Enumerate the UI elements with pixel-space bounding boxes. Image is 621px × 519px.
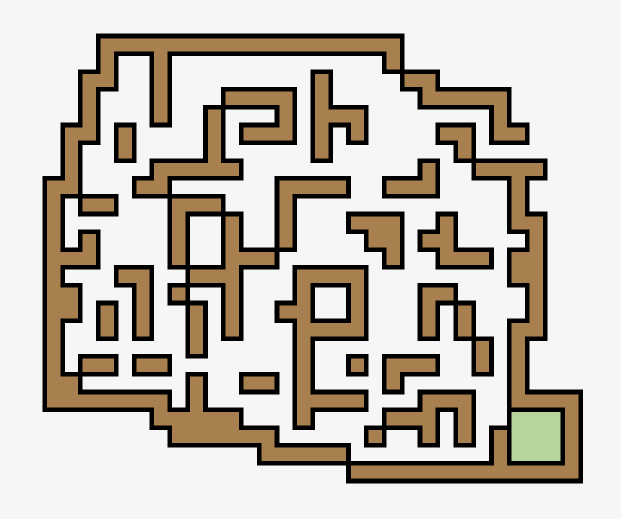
maze-wall-cell bbox=[44, 303, 62, 321]
maze-wall-cell bbox=[187, 427, 205, 445]
maze-wall-cell bbox=[187, 410, 205, 428]
maze-wall-cell bbox=[98, 54, 116, 72]
maze-wall-cell bbox=[277, 89, 295, 107]
maze-wall-cell bbox=[330, 178, 348, 196]
maze-wall-cell bbox=[223, 214, 241, 232]
maze-wall-cell bbox=[420, 89, 438, 107]
maze-wall-cell bbox=[420, 321, 438, 339]
maze-wall-cell bbox=[98, 392, 116, 410]
maze-wall-cell bbox=[241, 89, 259, 107]
maze-goal-cell bbox=[509, 445, 527, 463]
maze-wall-cell bbox=[563, 392, 581, 410]
maze-wall-cell bbox=[420, 427, 438, 445]
maze-wall-cell bbox=[152, 392, 170, 410]
maze-wall-cell bbox=[295, 445, 313, 463]
maze-wall-cell bbox=[509, 178, 527, 196]
maze-wall-cell bbox=[384, 214, 402, 232]
maze-wall-cell bbox=[62, 125, 80, 143]
maze-wall-cell bbox=[438, 285, 456, 303]
maze-wall-cell bbox=[295, 178, 313, 196]
maze-wall-cell bbox=[312, 321, 330, 339]
maze-wall-cell bbox=[241, 125, 259, 143]
maze-wall-cell bbox=[223, 232, 241, 250]
maze-wall-cell bbox=[295, 392, 313, 410]
maze-wall-cell bbox=[187, 303, 205, 321]
maze-wall-cell bbox=[80, 356, 98, 374]
maze-wall-cell bbox=[44, 356, 62, 374]
maze-wall-cell bbox=[44, 321, 62, 339]
maze-wall-cell bbox=[134, 356, 152, 374]
maze-wall-cell bbox=[420, 71, 438, 89]
maze-wall-cell bbox=[80, 125, 98, 143]
maze-wall-cell bbox=[438, 392, 456, 410]
maze-wall-cell bbox=[420, 232, 438, 250]
maze-wall-cell bbox=[491, 445, 509, 463]
maze-wall-cell bbox=[366, 232, 384, 250]
maze-wall-cell bbox=[455, 392, 473, 410]
maze-wall-cell bbox=[384, 249, 402, 267]
maze-wall-cell bbox=[44, 249, 62, 267]
maze-wall-cell bbox=[384, 54, 402, 72]
maze-wall-cell bbox=[527, 285, 545, 303]
maze-wall-cell bbox=[384, 36, 402, 54]
maze-wall-cell bbox=[44, 178, 62, 196]
maze-wall-cell bbox=[187, 267, 205, 285]
maze-wall-cell bbox=[420, 303, 438, 321]
maze-wall-cell bbox=[187, 374, 205, 392]
maze-wall-cell bbox=[295, 356, 313, 374]
maze-wall-cell bbox=[366, 463, 384, 481]
maze-wall-cell bbox=[44, 285, 62, 303]
maze-wall-cell bbox=[80, 249, 98, 267]
maze-wall-cell bbox=[116, 267, 134, 285]
maze-wall-cell bbox=[205, 267, 223, 285]
maze-wall-cell bbox=[205, 427, 223, 445]
maze-wall-cell bbox=[277, 214, 295, 232]
maze-wall-cell bbox=[169, 232, 187, 250]
maze-wall-cell bbox=[134, 36, 152, 54]
maze-wall-cell bbox=[134, 178, 152, 196]
maze-wall-cell bbox=[384, 410, 402, 428]
maze-wall-cell bbox=[312, 107, 330, 125]
maze-wall-cell bbox=[491, 125, 509, 143]
maze-wall-cell bbox=[312, 143, 330, 161]
maze-wall-cell bbox=[348, 214, 366, 232]
maze-wall-cell bbox=[152, 410, 170, 428]
maze-wall-cell bbox=[420, 178, 438, 196]
maze-wall-cell bbox=[330, 321, 348, 339]
maze-wall-cell bbox=[312, 89, 330, 107]
maze-wall-cell bbox=[223, 160, 241, 178]
maze-wall-cell bbox=[62, 285, 80, 303]
maze-wall-cell bbox=[312, 267, 330, 285]
maze-wall-cell bbox=[223, 267, 241, 285]
maze-wall-cell bbox=[241, 249, 259, 267]
maze-wall-cell bbox=[241, 427, 259, 445]
maze-wall-cell bbox=[62, 303, 80, 321]
maze-wall-cell bbox=[152, 54, 170, 72]
maze-wall-cell bbox=[205, 410, 223, 428]
maze-goal-cell bbox=[545, 427, 563, 445]
maze-wall-cell bbox=[295, 36, 313, 54]
maze-wall-cell bbox=[295, 285, 313, 303]
maze-wall-cell bbox=[44, 374, 62, 392]
maze-goal-cell bbox=[527, 410, 545, 428]
maze-wall-cell bbox=[259, 249, 277, 267]
maze-wall-cell bbox=[455, 125, 473, 143]
maze-wall-cell bbox=[116, 143, 134, 161]
maze-wall-cell bbox=[259, 89, 277, 107]
maze-wall-cell bbox=[384, 374, 402, 392]
maze-wall-cell bbox=[509, 356, 527, 374]
maze-wall-cell bbox=[527, 463, 545, 481]
maze-wall-cell bbox=[152, 71, 170, 89]
maze-wall-cell bbox=[509, 249, 527, 267]
maze-wall-cell bbox=[134, 303, 152, 321]
maze-wall-cell bbox=[152, 107, 170, 125]
maze-wall-cell bbox=[98, 36, 116, 54]
maze-wall-cell bbox=[169, 36, 187, 54]
maze-wall-cell bbox=[223, 303, 241, 321]
maze-wall-cell bbox=[330, 392, 348, 410]
game-window bbox=[0, 0, 621, 519]
maze-wall-cell bbox=[259, 427, 277, 445]
maze-wall-cell bbox=[277, 107, 295, 125]
maze-wall-cell bbox=[62, 249, 80, 267]
maze-wall-cell bbox=[259, 374, 277, 392]
maze-wall-cell bbox=[438, 249, 456, 267]
maze-wall-cell bbox=[223, 410, 241, 428]
maze-wall-cell bbox=[205, 107, 223, 125]
maze-wall-cell bbox=[420, 160, 438, 178]
maze-wall-cell bbox=[330, 445, 348, 463]
maze-wall-cell bbox=[205, 160, 223, 178]
maze-wall-cell bbox=[509, 392, 527, 410]
maze-wall-cell bbox=[330, 36, 348, 54]
maze-wall-cell bbox=[348, 463, 366, 481]
maze-wall-cell bbox=[62, 178, 80, 196]
maze-wall-cell bbox=[152, 160, 170, 178]
maze-wall-cell bbox=[527, 392, 545, 410]
maze-wall-cell bbox=[491, 427, 509, 445]
maze-wall-cell bbox=[80, 196, 98, 214]
maze-wall-cell bbox=[455, 143, 473, 161]
maze-wall-cell bbox=[187, 321, 205, 339]
maze-wall-cell bbox=[563, 410, 581, 428]
maze-wall-cell bbox=[563, 427, 581, 445]
maze-wall-cell bbox=[116, 125, 134, 143]
maze-wall-cell bbox=[295, 374, 313, 392]
maze-wall-cell bbox=[134, 285, 152, 303]
maze-wall-cell bbox=[348, 356, 366, 374]
maze-wall-cell bbox=[277, 232, 295, 250]
maze-wall-cell bbox=[277, 445, 295, 463]
maze-wall-cell bbox=[509, 321, 527, 339]
maze-wall-cell bbox=[312, 178, 330, 196]
maze-wall-cell bbox=[455, 463, 473, 481]
maze-wall-cell bbox=[277, 196, 295, 214]
maze-wall-cell bbox=[402, 356, 420, 374]
maze-wall-cell bbox=[80, 89, 98, 107]
maze-wall-cell bbox=[223, 321, 241, 339]
maze-goal-cell bbox=[527, 445, 545, 463]
maze-wall-cell bbox=[134, 267, 152, 285]
maze-wall-cell bbox=[259, 36, 277, 54]
maze-wall-cell bbox=[223, 427, 241, 445]
maze-wall-cell bbox=[169, 410, 187, 428]
maze-wall-cell bbox=[402, 463, 420, 481]
maze-wall-cell bbox=[509, 125, 527, 143]
maze-wall-cell bbox=[134, 392, 152, 410]
maze-wall-cell bbox=[420, 285, 438, 303]
maze-wall-cell bbox=[384, 232, 402, 250]
maze-wall-cell bbox=[509, 463, 527, 481]
maze-wall-cell bbox=[187, 196, 205, 214]
maze-wall-cell bbox=[187, 160, 205, 178]
maze-wall-cell bbox=[116, 36, 134, 54]
maze-wall-cell bbox=[312, 36, 330, 54]
maze-wall-cell bbox=[384, 356, 402, 374]
maze-wall-cell bbox=[473, 89, 491, 107]
maze-wall-cell bbox=[98, 321, 116, 339]
maze-wall-cell bbox=[277, 303, 295, 321]
maze-wall-cell bbox=[438, 89, 456, 107]
maze-wall-cell bbox=[205, 36, 223, 54]
maze-wall-cell bbox=[563, 463, 581, 481]
maze-wall-cell bbox=[420, 356, 438, 374]
maze-canvas[interactable] bbox=[0, 0, 621, 519]
maze-wall-cell bbox=[438, 463, 456, 481]
maze-wall-cell bbox=[366, 214, 384, 232]
maze-wall-cell bbox=[402, 71, 420, 89]
maze-wall-cell bbox=[509, 338, 527, 356]
maze-wall-cell bbox=[420, 463, 438, 481]
maze-goal-cell bbox=[527, 427, 545, 445]
maze-wall-cell bbox=[438, 214, 456, 232]
maze-wall-cell bbox=[366, 427, 384, 445]
maze-wall-cell bbox=[545, 463, 563, 481]
maze-wall-cell bbox=[277, 178, 295, 196]
maze-wall-cell bbox=[348, 285, 366, 303]
maze-wall-cell bbox=[223, 89, 241, 107]
maze-wall-cell bbox=[491, 89, 509, 107]
maze-wall-cell bbox=[241, 36, 259, 54]
maze-wall-cell bbox=[366, 36, 384, 54]
maze-wall-cell bbox=[44, 267, 62, 285]
maze-goal-cell bbox=[545, 445, 563, 463]
maze-wall-cell bbox=[402, 178, 420, 196]
maze-wall-cell bbox=[62, 374, 80, 392]
maze-wall-cell bbox=[348, 125, 366, 143]
maze-wall-cell bbox=[509, 160, 527, 178]
maze-wall-cell bbox=[134, 321, 152, 339]
maze-wall-cell bbox=[438, 232, 456, 250]
maze-wall-cell bbox=[187, 338, 205, 356]
maze-wall-cell bbox=[473, 249, 491, 267]
maze-wall-cell bbox=[62, 392, 80, 410]
maze-wall-cell bbox=[295, 267, 313, 285]
maze-wall-cell bbox=[152, 89, 170, 107]
maze-wall-cell bbox=[384, 463, 402, 481]
maze-wall-cell bbox=[455, 89, 473, 107]
maze-wall-cell bbox=[295, 303, 313, 321]
maze-wall-cell bbox=[44, 338, 62, 356]
maze-wall-cell bbox=[348, 321, 366, 339]
maze-goal-cell bbox=[545, 410, 563, 428]
maze-wall-cell bbox=[527, 267, 545, 285]
maze-wall-cell bbox=[455, 427, 473, 445]
maze-wall-cell bbox=[491, 463, 509, 481]
maze-wall-cell bbox=[98, 356, 116, 374]
maze-wall-cell bbox=[527, 160, 545, 178]
maze-wall-cell bbox=[348, 36, 366, 54]
maze-wall-cell bbox=[455, 410, 473, 428]
maze-wall-cell bbox=[295, 338, 313, 356]
maze-wall-cell bbox=[312, 71, 330, 89]
maze-wall-cell bbox=[80, 232, 98, 250]
maze-wall-cell bbox=[527, 303, 545, 321]
maze-wall-cell bbox=[420, 392, 438, 410]
maze-wall-cell bbox=[116, 392, 134, 410]
maze-wall-cell bbox=[152, 178, 170, 196]
maze-wall-cell bbox=[169, 427, 187, 445]
maze-wall-cell bbox=[509, 267, 527, 285]
maze-wall-cell bbox=[330, 267, 348, 285]
maze-wall-cell bbox=[455, 321, 473, 339]
maze-wall-cell bbox=[348, 107, 366, 125]
maze-wall-cell bbox=[348, 267, 366, 285]
maze-wall-cell bbox=[169, 249, 187, 267]
maze-wall-cell bbox=[473, 463, 491, 481]
maze-wall-cell bbox=[491, 107, 509, 125]
maze-wall-cell bbox=[527, 321, 545, 339]
maze-wall-cell bbox=[277, 36, 295, 54]
maze-wall-cell bbox=[223, 249, 241, 267]
maze-wall-cell bbox=[295, 410, 313, 428]
maze-goal[interactable] bbox=[509, 410, 563, 464]
maze-wall-cell bbox=[295, 321, 313, 339]
maze-wall-cell bbox=[312, 392, 330, 410]
maze-wall-cell bbox=[277, 125, 295, 143]
maze-wall-cell bbox=[169, 285, 187, 303]
maze-wall-cell bbox=[384, 178, 402, 196]
maze-wall-cell bbox=[98, 303, 116, 321]
maze-wall-cell bbox=[44, 214, 62, 232]
maze-wall-cell bbox=[545, 392, 563, 410]
maze-wall-cell bbox=[455, 249, 473, 267]
maze-wall-cell bbox=[259, 125, 277, 143]
maze-wall-cell bbox=[312, 125, 330, 143]
maze-goal-cell bbox=[509, 427, 527, 445]
maze-wall-cell bbox=[527, 232, 545, 250]
maze-wall-cell bbox=[80, 107, 98, 125]
maze-wall-cell bbox=[223, 36, 241, 54]
maze-wall-cell bbox=[169, 160, 187, 178]
maze-wall-cell bbox=[169, 214, 187, 232]
maze-wall-cell bbox=[187, 36, 205, 54]
maze-wall-cell bbox=[44, 196, 62, 214]
maze-wall-cell bbox=[402, 410, 420, 428]
maze-wall-cell bbox=[312, 445, 330, 463]
maze-wall-cell bbox=[205, 125, 223, 143]
maze-wall-cell bbox=[330, 107, 348, 125]
maze-wall-cell bbox=[509, 214, 527, 232]
maze-wall-cell bbox=[241, 374, 259, 392]
maze-wall-cell bbox=[152, 356, 170, 374]
maze-wall-cell bbox=[205, 143, 223, 161]
maze-wall-cell bbox=[527, 214, 545, 232]
maze-wall-cell bbox=[438, 125, 456, 143]
maze-wall-cell bbox=[563, 445, 581, 463]
maze-wall-cell bbox=[348, 303, 366, 321]
maze-wall-cell bbox=[491, 160, 509, 178]
maze-wall-cell bbox=[62, 160, 80, 178]
maze-wall-cell bbox=[420, 410, 438, 428]
maze-wall-cell bbox=[44, 392, 62, 410]
maze-wall-cell bbox=[455, 303, 473, 321]
maze-wall-cell bbox=[62, 143, 80, 161]
maze-wall-cell bbox=[152, 36, 170, 54]
maze-wall-cell bbox=[80, 71, 98, 89]
maze-goal-cell bbox=[509, 410, 527, 428]
maze-wall-cell bbox=[98, 71, 116, 89]
maze-wall-cell bbox=[348, 392, 366, 410]
maze-wall-cell bbox=[527, 249, 545, 267]
maze-wall-cell bbox=[473, 160, 491, 178]
maze-wall-cell bbox=[205, 196, 223, 214]
maze-wall-cell bbox=[223, 285, 241, 303]
maze-wall-cell bbox=[509, 374, 527, 392]
maze-wall-cell bbox=[98, 196, 116, 214]
maze-wall-cell bbox=[259, 445, 277, 463]
maze-wall-cell bbox=[187, 392, 205, 410]
maze-wall-cell bbox=[473, 338, 491, 356]
maze-wall-cell bbox=[473, 356, 491, 374]
maze-wall-cell bbox=[44, 232, 62, 250]
maze-wall-cell bbox=[509, 196, 527, 214]
maze-wall-cell bbox=[169, 196, 187, 214]
maze-wall-cell bbox=[80, 392, 98, 410]
